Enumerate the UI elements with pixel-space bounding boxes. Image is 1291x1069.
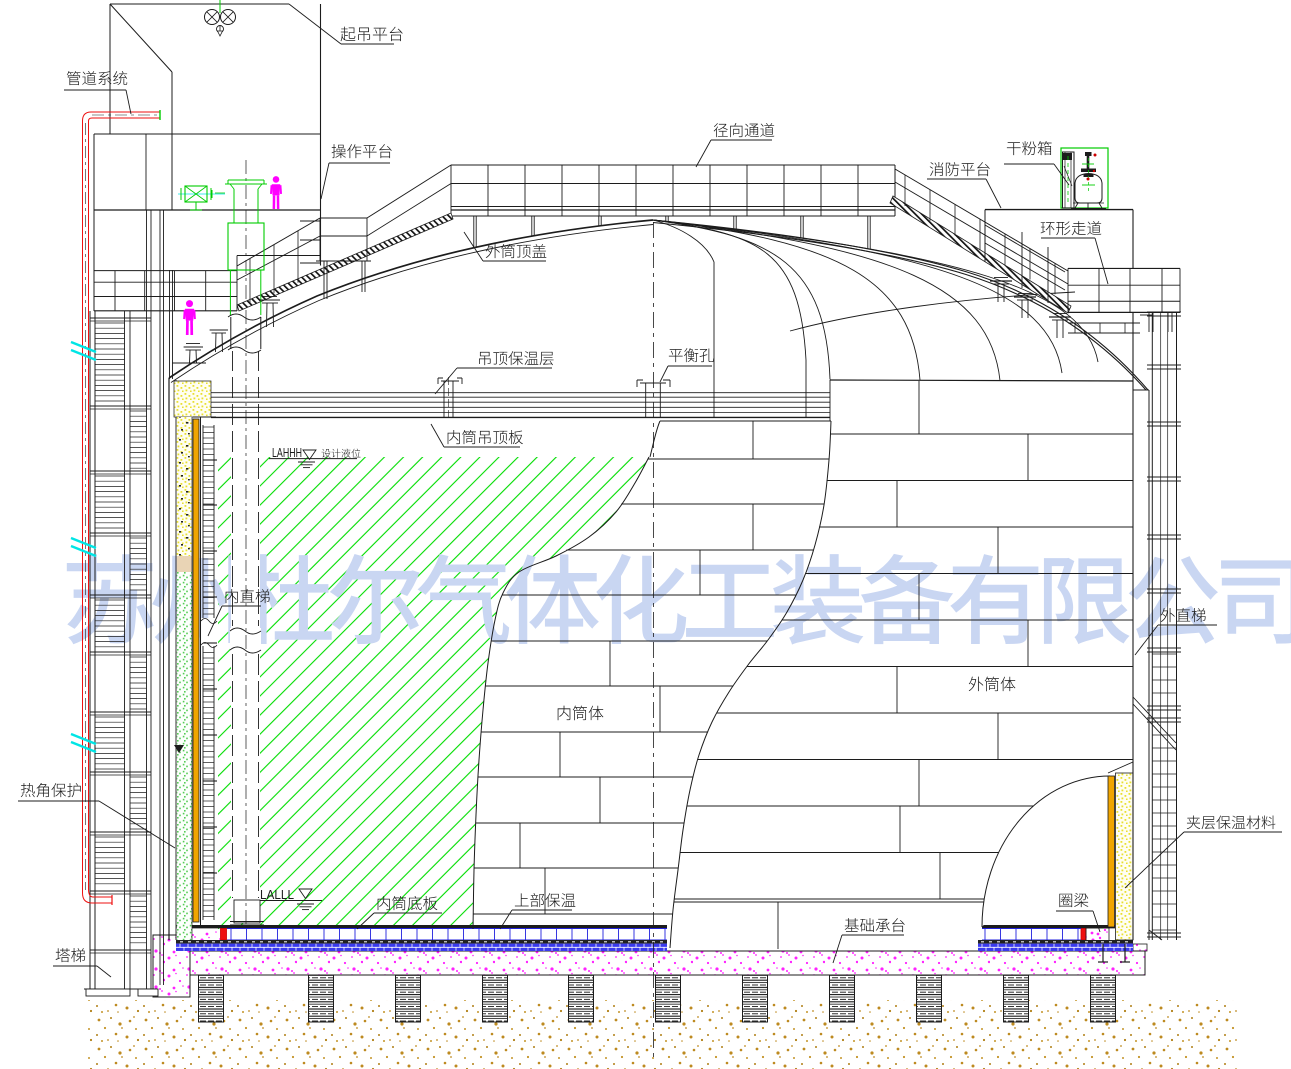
svg-text:LAHHH: LAHHH <box>272 446 302 460</box>
svg-text:LALLL: LALLL <box>260 888 294 902</box>
